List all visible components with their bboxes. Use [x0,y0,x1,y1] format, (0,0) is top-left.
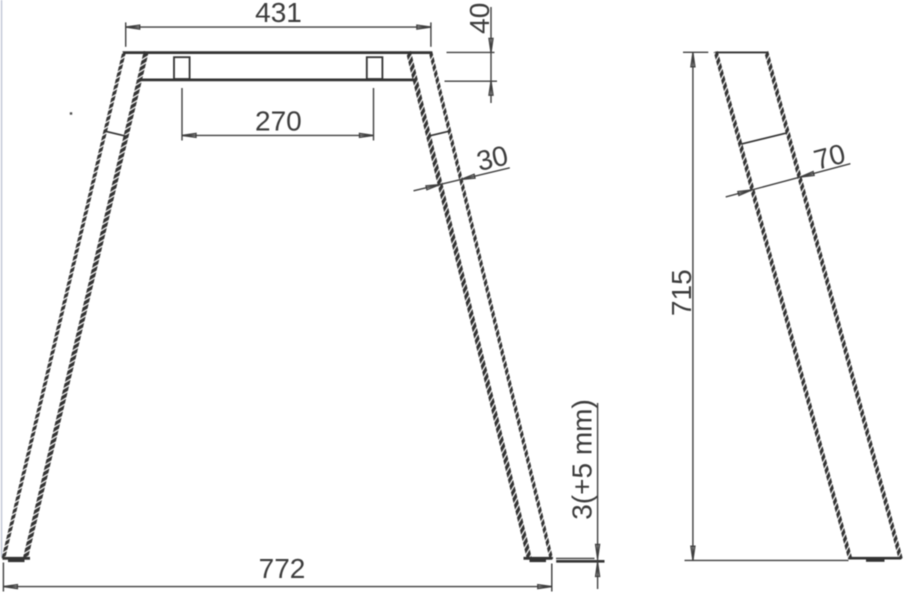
svg-text:772: 772 [259,553,306,584]
svg-text:431: 431 [255,0,302,28]
svg-text:40: 40 [464,3,495,34]
svg-text:3(+5 mm): 3(+5 mm) [567,399,598,520]
svg-text:715: 715 [666,269,697,316]
svg-text:270: 270 [255,106,302,137]
